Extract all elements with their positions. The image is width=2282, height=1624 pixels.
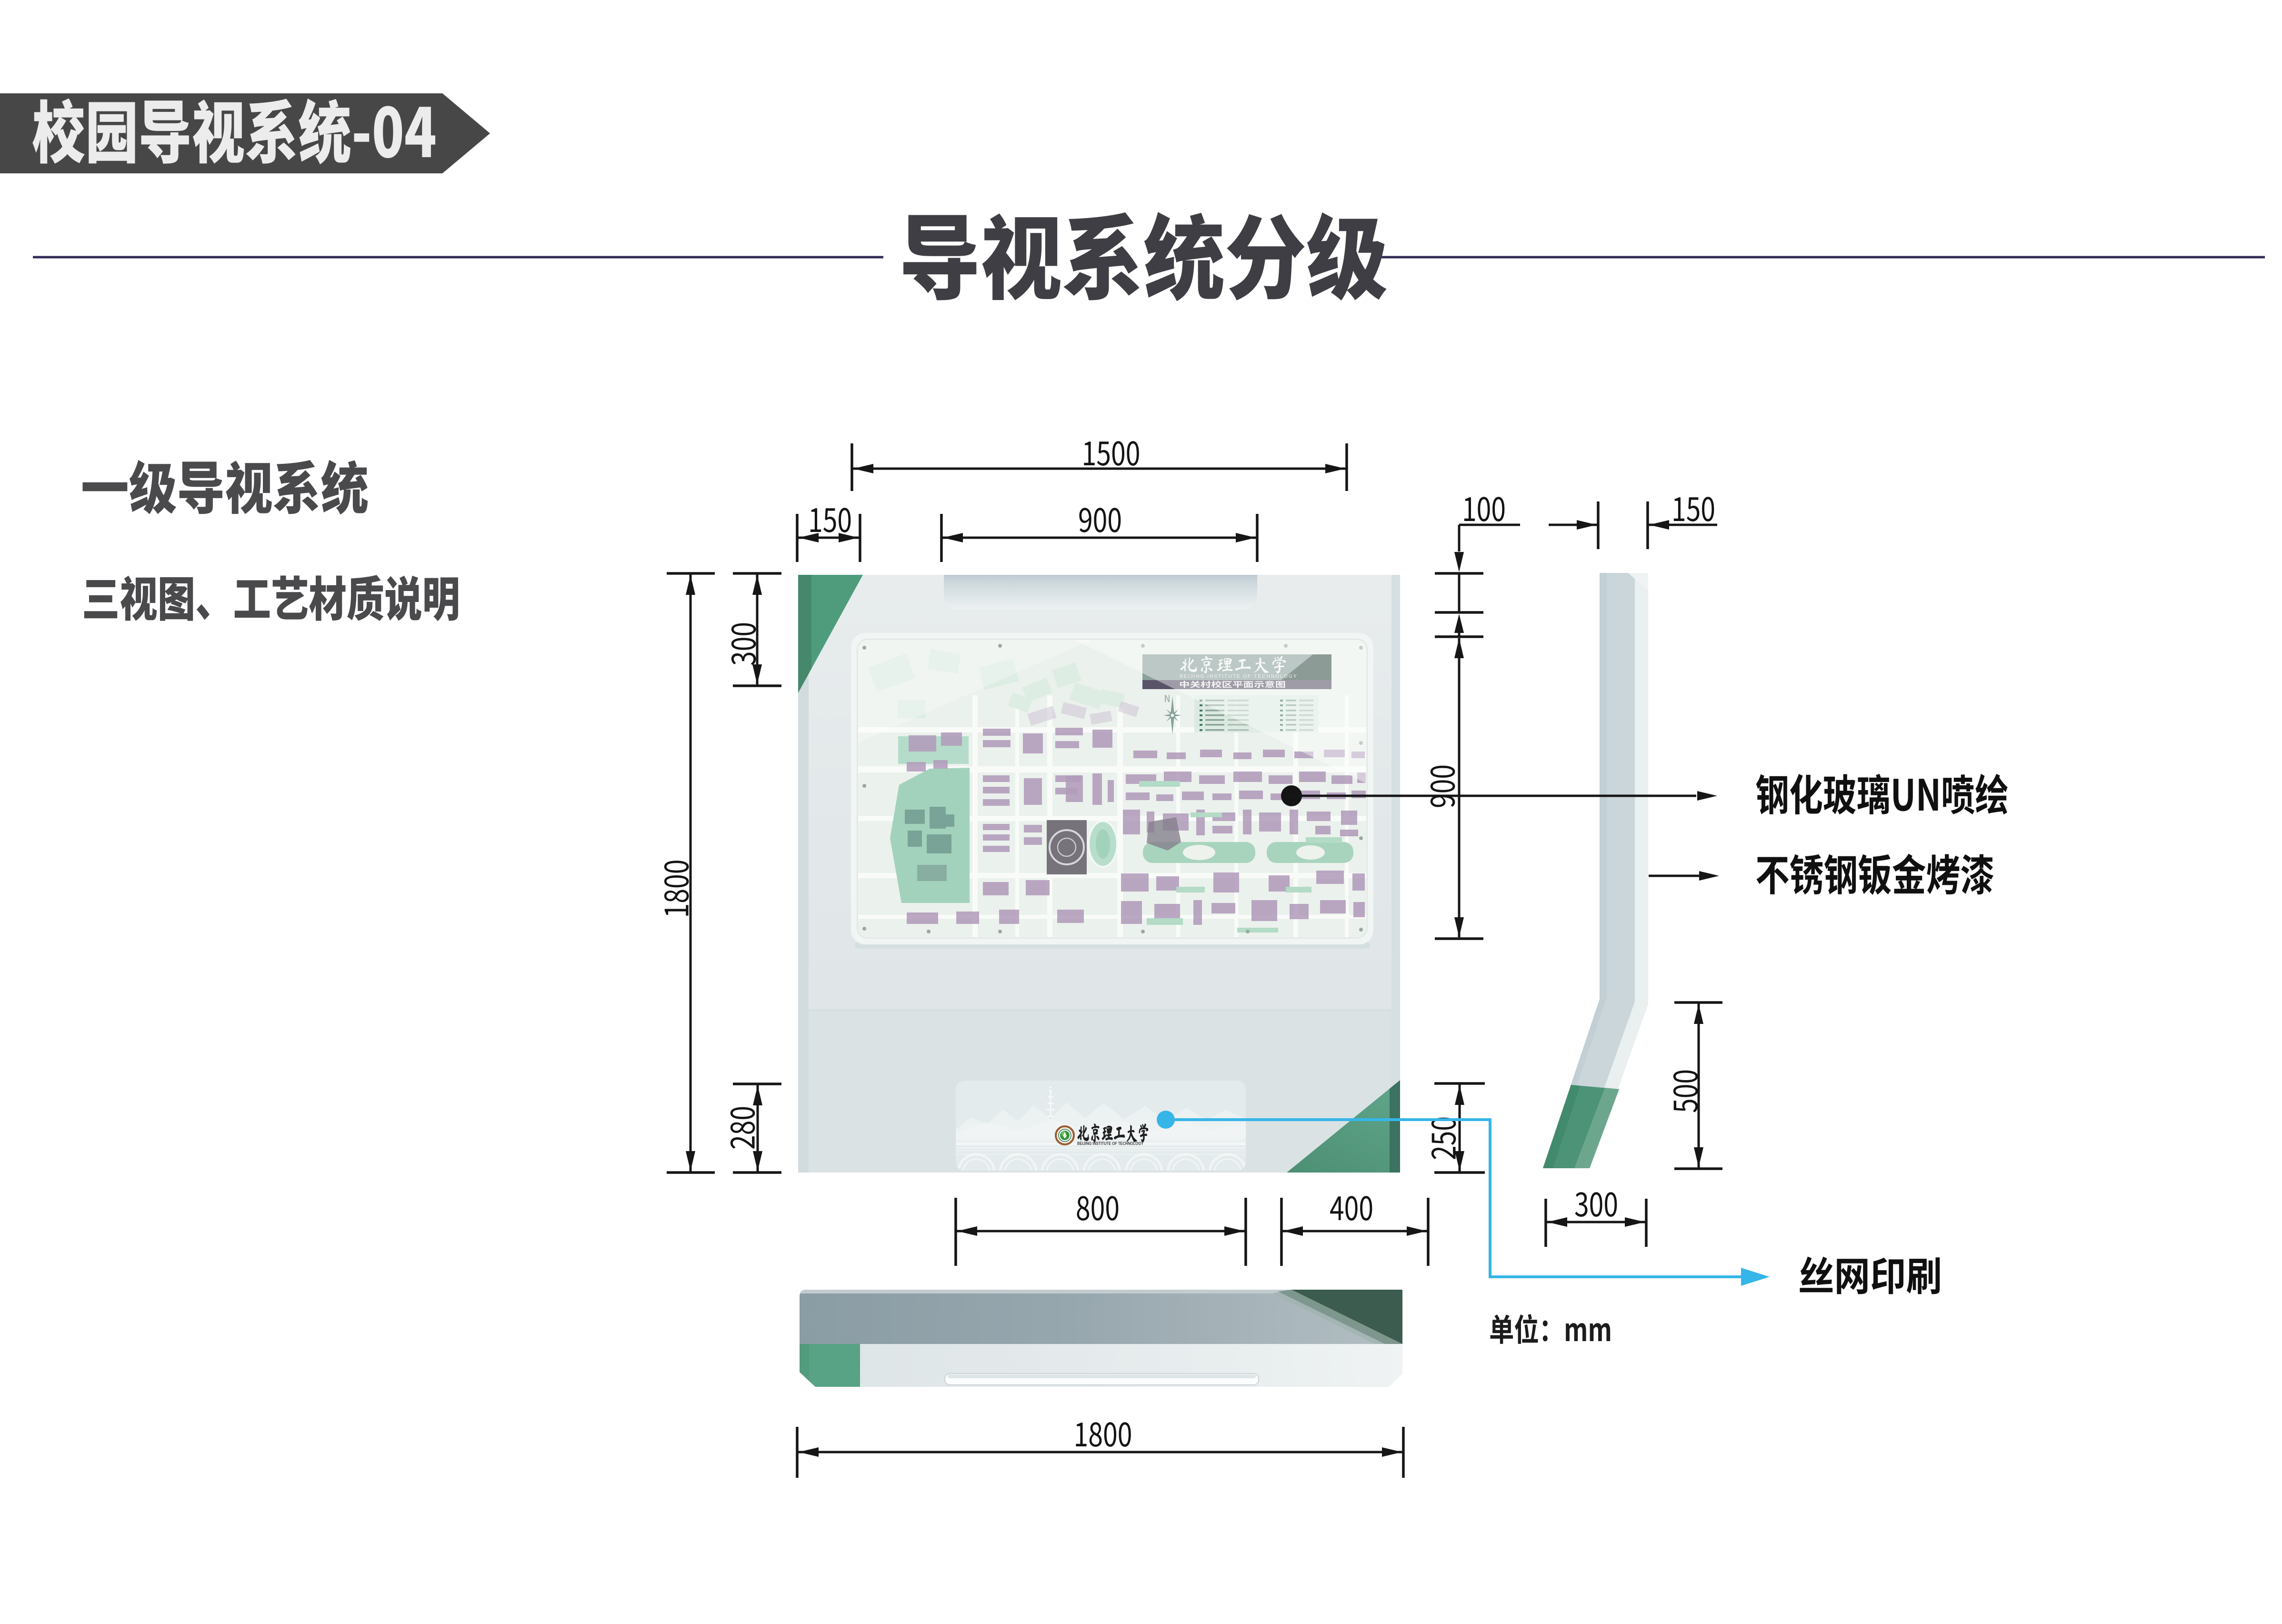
svg-text:BEIJING INSTITUTE OF TECHNOLOG: BEIJING INSTITUTE OF TECHNOLOGY [1077, 1141, 1143, 1146]
